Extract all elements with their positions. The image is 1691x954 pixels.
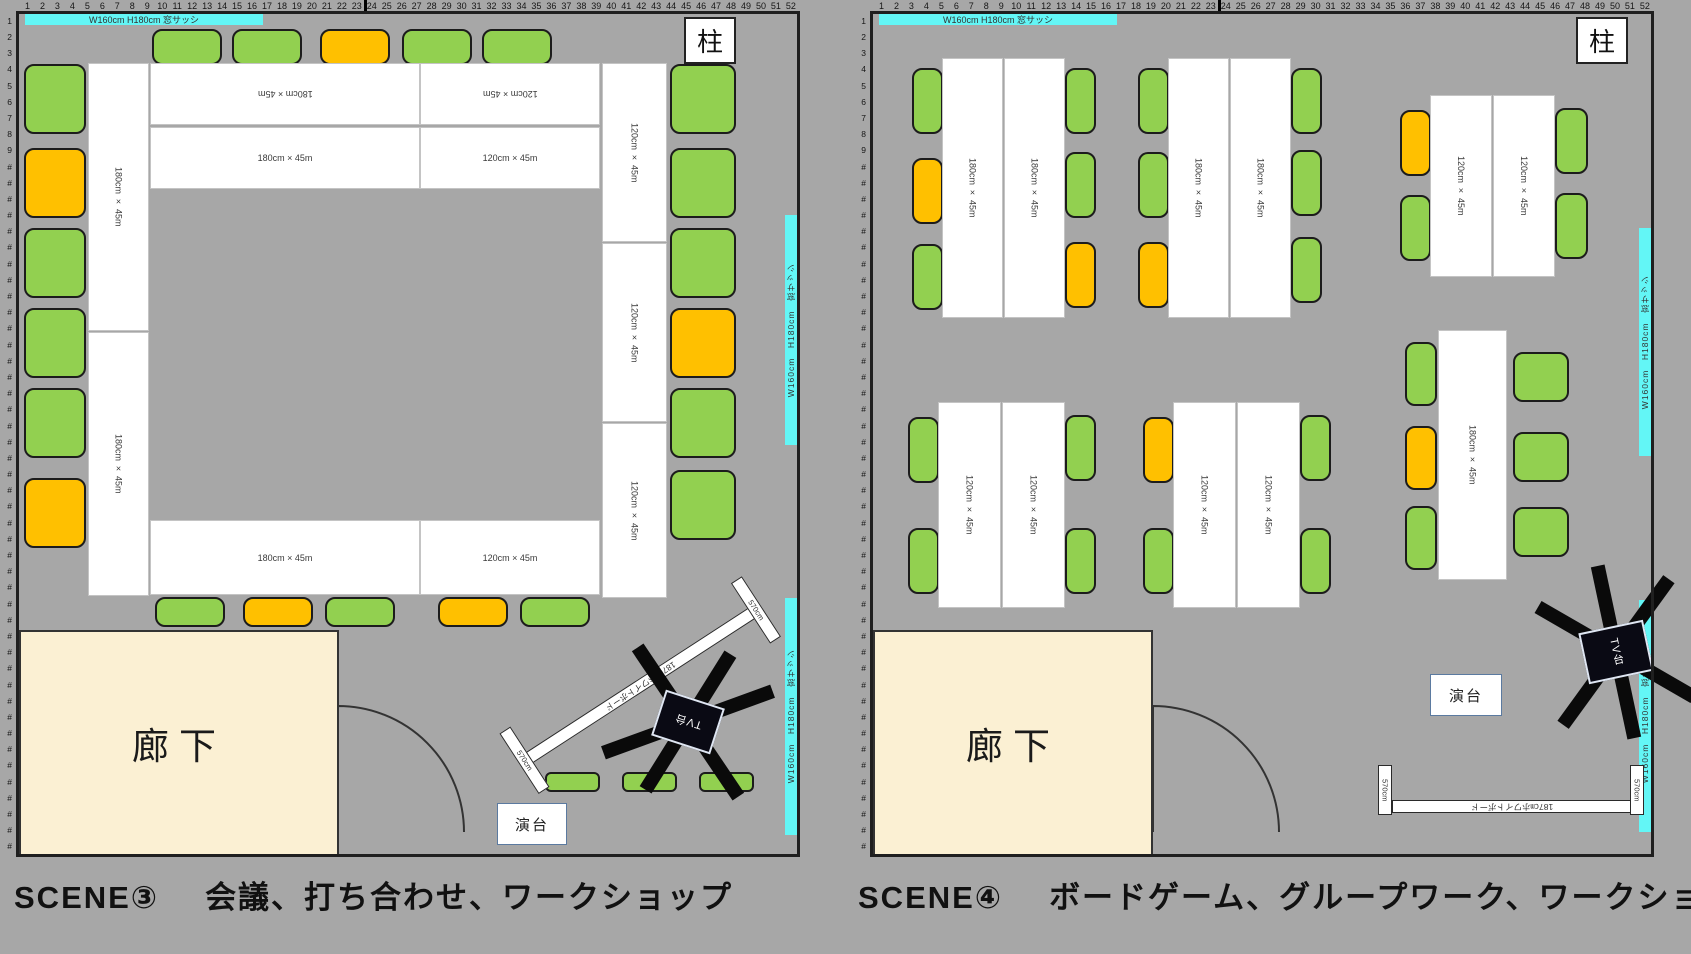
whiteboard-board: 187㎝ホワイトボード: [1392, 800, 1632, 813]
table-120x45: 120cm × 45m: [938, 402, 1001, 608]
row-ruler-scene4: 123456789###############################…: [855, 13, 869, 855]
chair: [24, 64, 86, 134]
door-arc: [338, 706, 464, 832]
chair: [1138, 242, 1169, 308]
scene3-title: SCENE③: [14, 880, 159, 915]
window-sash-label: W160cm H180cm 窓サッシ: [89, 14, 199, 25]
floorplan-canvas: 1234567891011121314151617181920212223242…: [0, 0, 1691, 954]
chair: [1555, 108, 1588, 174]
table-120x45: 120cm × 45m: [1430, 95, 1492, 277]
table-180x45: 180cm × 45m: [150, 520, 420, 595]
chair: [670, 388, 736, 458]
window-sash-label: W160cm H180cm 窓サッシ: [1639, 275, 1651, 409]
corridor-label: 廊下: [132, 716, 226, 770]
chair: [24, 228, 86, 298]
row-ruler-scene3: 123456789###############################…: [1, 13, 15, 855]
table-120x45: 120cm × 45m: [1173, 402, 1236, 608]
chair: [912, 68, 943, 134]
chair: [520, 597, 590, 627]
tv-stand: TV台: [1509, 545, 1691, 758]
chair: [1405, 342, 1437, 406]
chair: [325, 597, 395, 627]
chair: [1513, 352, 1569, 402]
chair: [912, 158, 943, 224]
pillar-label: 柱: [697, 22, 723, 59]
chair: [1405, 506, 1437, 570]
chair: [670, 228, 736, 298]
table-180x45: 180cm × 45m: [88, 332, 149, 596]
table-180x45: 180cm × 45m: [1438, 330, 1507, 580]
chair: [1143, 528, 1174, 594]
chair: [24, 308, 86, 378]
table-180x45: 180cm × 45m: [1168, 58, 1229, 318]
chair: [1513, 432, 1569, 482]
scene4-desc: ボードゲーム、グループワーク、ワークショップ: [1049, 880, 1691, 915]
pillar: 柱: [1576, 17, 1628, 64]
pillar: 柱: [684, 17, 736, 64]
chair: [438, 597, 508, 627]
chair: [670, 470, 736, 540]
page-break-line: [364, 0, 367, 13]
table-120x45: 120cm × 45m: [1493, 95, 1555, 277]
chair: [1300, 528, 1331, 594]
chair: [1405, 426, 1437, 490]
table-120x45: 120cm × 45m: [420, 127, 600, 189]
whiteboard-leg: 570cm: [499, 727, 549, 794]
chair: [482, 29, 552, 65]
chair: [1138, 68, 1169, 134]
table-180x45: 180cm × 45m: [88, 63, 149, 331]
window-sash-top: W160cm H180cm 窓サッシ: [879, 14, 1117, 25]
chair: [155, 597, 225, 627]
tv-stand-screen: TV台: [651, 690, 725, 755]
table-180x45: 180cm × 45m: [150, 127, 420, 189]
chair: [1300, 415, 1331, 481]
chair: [402, 29, 472, 65]
chair: [1400, 110, 1431, 176]
window-sash-right: W160cm H180cm 窓サッシ: [785, 598, 797, 835]
corridor-label: 廊下: [966, 716, 1060, 770]
window-sash-right: W160cm H180cm 窓サッシ: [785, 215, 797, 445]
scene3-caption: SCENE③会議、打ち合わせ、ワークショップ: [14, 872, 733, 917]
scene3-desc: 会議、打ち合わせ、ワークショップ: [205, 880, 733, 915]
whiteboard-leg: 570cm: [731, 576, 781, 643]
chair: [24, 148, 86, 218]
window-sash-label: W160cm H180cm 窓サッシ: [943, 14, 1053, 25]
chair: [1065, 415, 1096, 481]
chair: [243, 597, 313, 627]
chair: [232, 29, 302, 65]
table-120x45: 120cm × 45m: [420, 63, 600, 125]
corridor: 廊下: [19, 630, 339, 856]
chair: [1400, 195, 1431, 261]
door-arc: [1153, 706, 1279, 832]
chair: [152, 29, 222, 65]
page-break-line: [1218, 0, 1221, 13]
chair: [1143, 417, 1174, 483]
chair: [1291, 68, 1322, 134]
chair: [912, 244, 943, 310]
window-sash-label: W160cm H180cm 窓サッシ: [785, 263, 797, 397]
chair: [1065, 68, 1096, 134]
chair: [670, 64, 736, 134]
chair: [1065, 242, 1096, 308]
chair: [670, 148, 736, 218]
chair: [1065, 152, 1096, 218]
scene4-caption: SCENE④ボードゲーム、グループワーク、ワークショップ: [858, 872, 1691, 917]
table-120x45: 120cm × 45m: [1002, 402, 1065, 608]
tv-stand: TV台: [575, 609, 802, 836]
chair: [1291, 150, 1322, 216]
column-ruler-scene3: 1234567891011121314151617181920212223242…: [20, 0, 798, 13]
chair: [24, 388, 86, 458]
window-sash-top: W160cm H180cm 窓サッシ: [25, 14, 263, 25]
scene4-title: SCENE④: [858, 880, 1003, 915]
corridor: 廊下: [873, 630, 1153, 856]
podium: 演台: [497, 803, 567, 845]
table-120x45: 120cm × 45m: [602, 423, 667, 598]
whiteboard-leg: 570cm: [1630, 765, 1644, 815]
chair: [320, 29, 390, 65]
chair: [1555, 193, 1588, 259]
chair: [908, 417, 939, 483]
table-180x45: 180cm × 45m: [1230, 58, 1291, 318]
table-120x45: 120cm × 45m: [602, 243, 667, 422]
chair: [24, 478, 86, 548]
whiteboard-leg: 570cm: [1378, 765, 1392, 815]
pillar-label: 柱: [1589, 22, 1615, 59]
chair: [1291, 237, 1322, 303]
chair: [1138, 152, 1169, 218]
table-180x45: 180cm × 45m: [942, 58, 1003, 318]
chair: [670, 308, 736, 378]
podium: 演台: [1430, 674, 1502, 716]
table-180x45: 180cm × 45m: [1004, 58, 1065, 318]
chair: [1513, 507, 1569, 557]
table-120x45: 120cm × 45m: [420, 520, 600, 595]
chair: [908, 528, 939, 594]
window-sash-right: W160cm H180cm 窓サッシ: [1639, 228, 1651, 456]
column-ruler-scene4: 1234567891011121314151617181920212223242…: [874, 0, 1652, 13]
table-120x45: 120cm × 45m: [1237, 402, 1300, 608]
table-180x45: 180cm × 45m: [150, 63, 420, 125]
chair: [1065, 528, 1096, 594]
table-120x45: 120cm × 45m: [602, 63, 667, 242]
